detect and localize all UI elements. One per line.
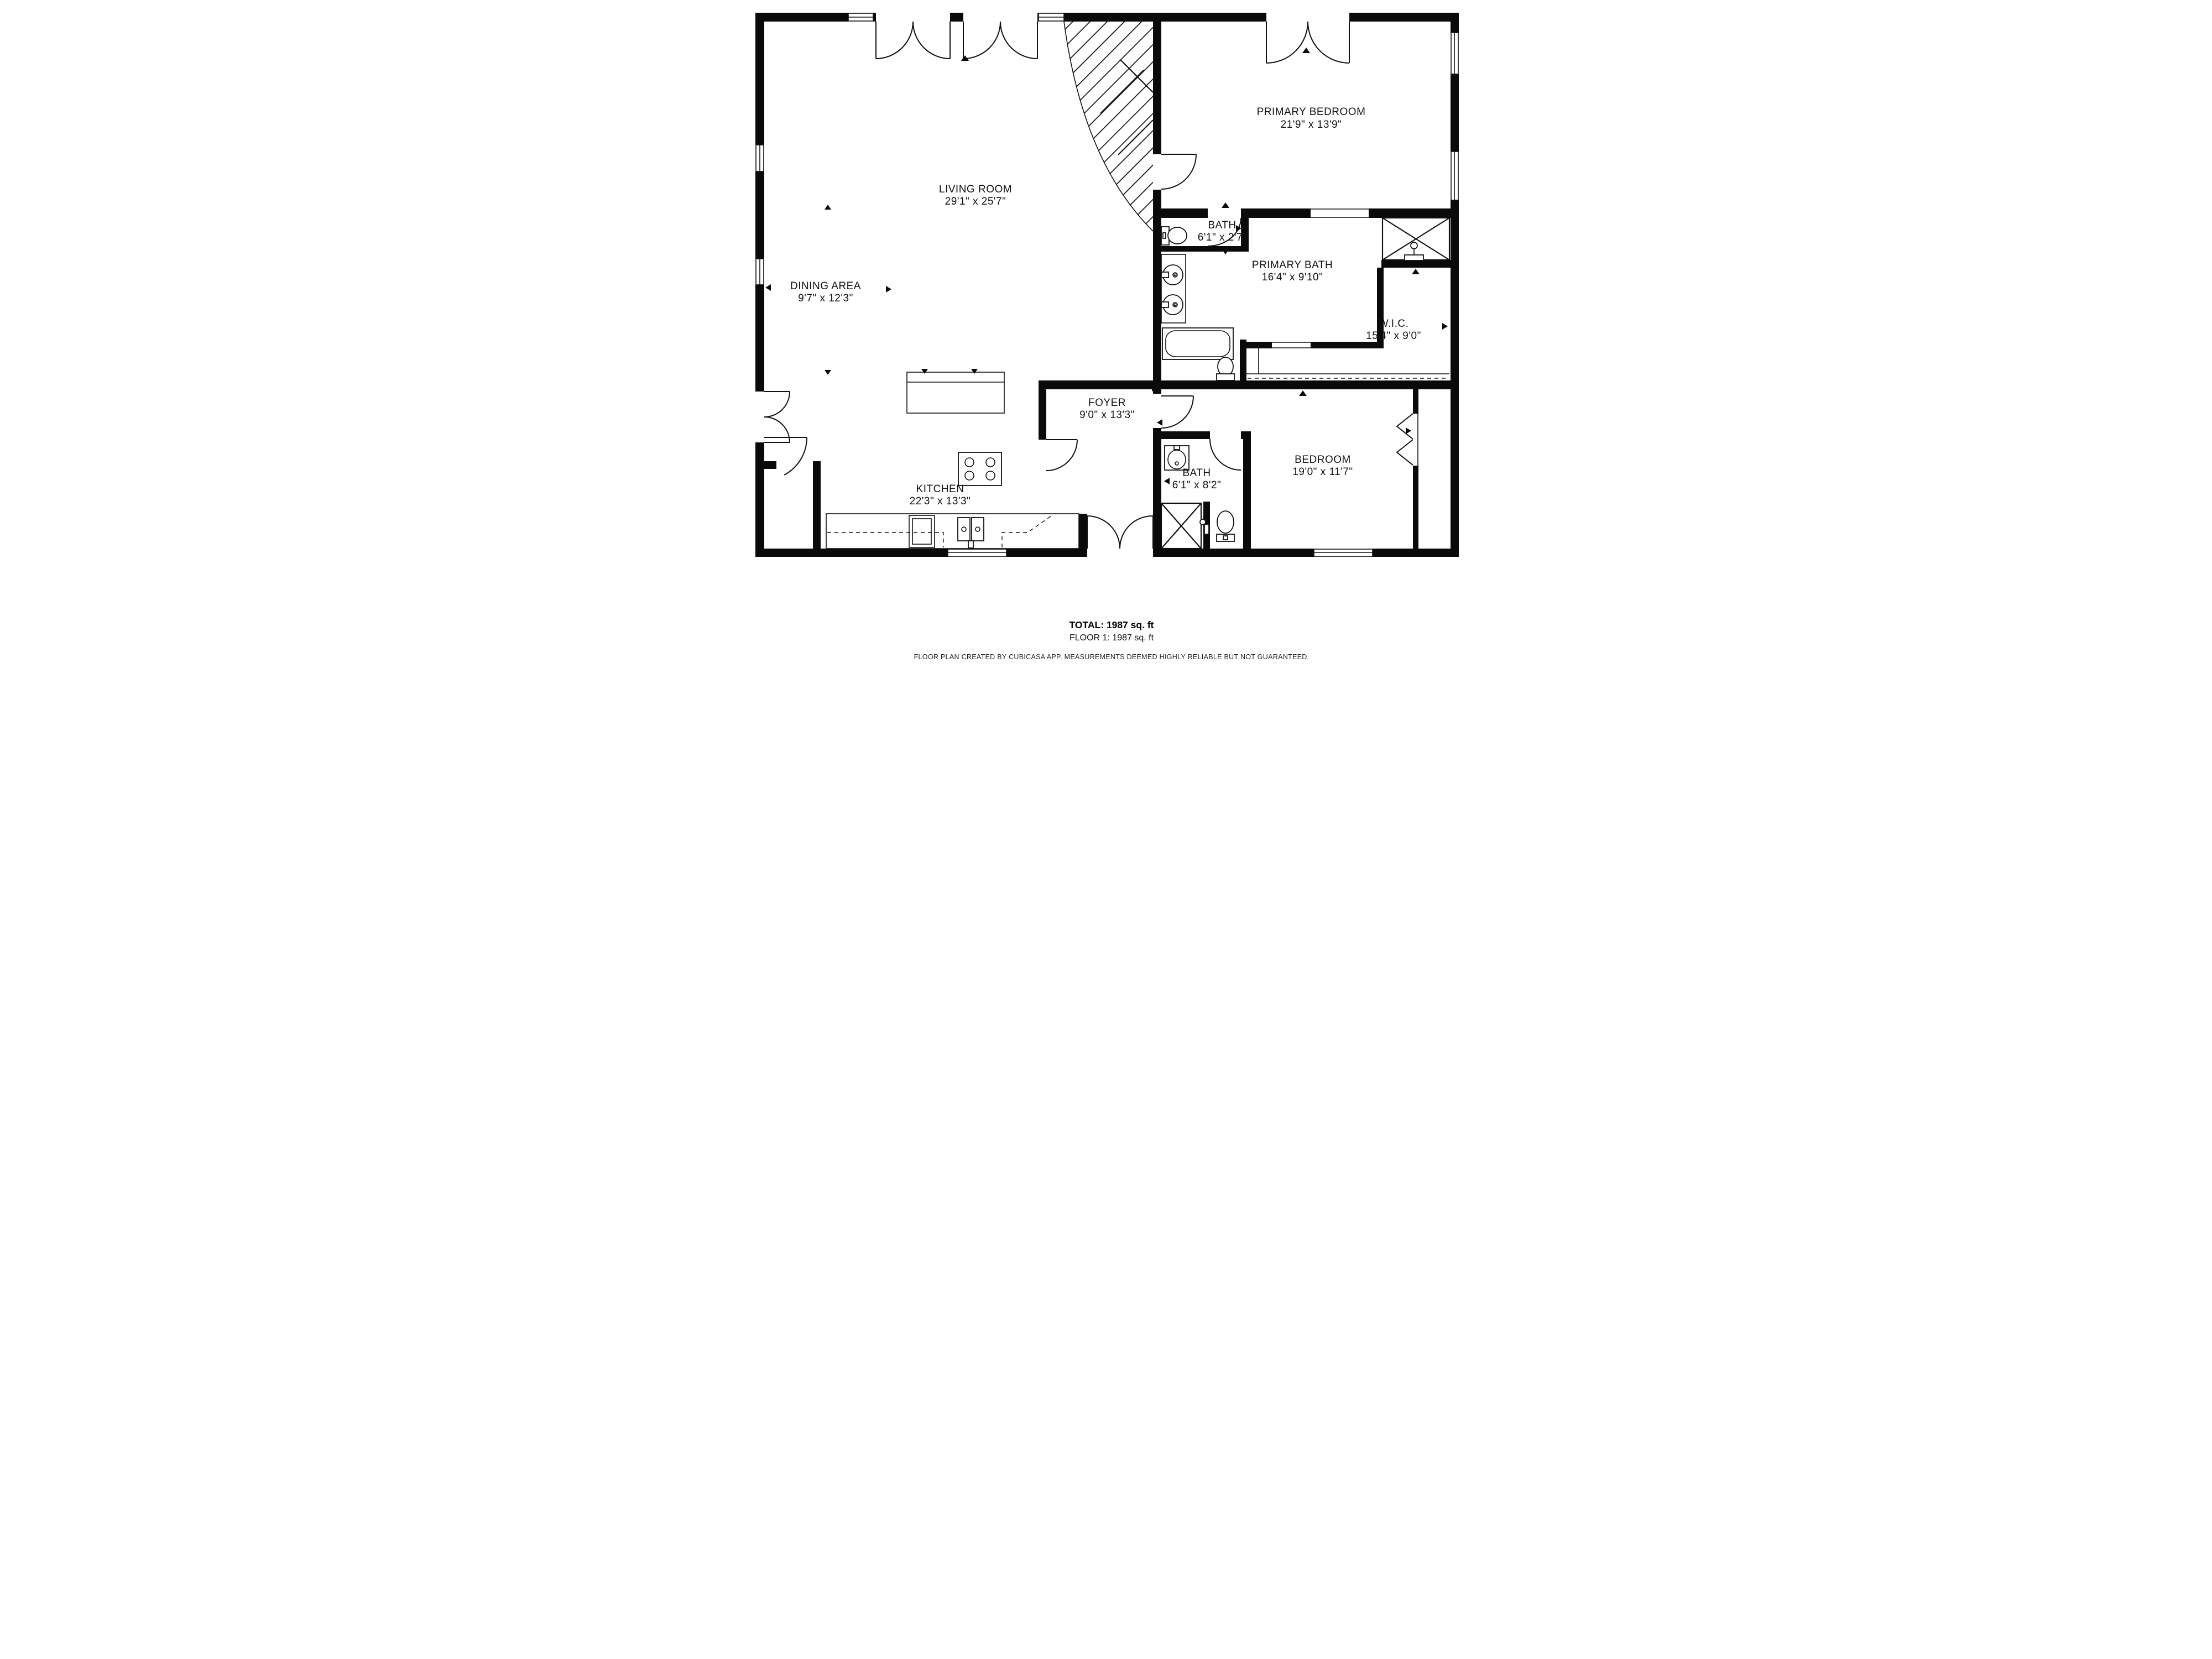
room-dims-kitchen: 22'3" x 13'3" xyxy=(910,495,971,507)
room-dims-dining: 9'7" x 12'3" xyxy=(798,293,853,304)
hatched-area xyxy=(1064,22,1153,231)
arrow-up-icon xyxy=(1299,390,1307,396)
wic-shelving xyxy=(1246,348,1449,378)
toilet-icon xyxy=(1161,227,1187,245)
arrow-up-icon xyxy=(825,205,831,210)
arrow-down-icon xyxy=(921,369,928,374)
dishwasher-icon xyxy=(909,515,935,547)
disclaimer-text: FLOOR PLAN CREATED BY CUBICASA APP. MEAS… xyxy=(914,653,1310,661)
room-dims-wc-bath: 6'1" x 2'7" xyxy=(1198,232,1247,243)
room-label-bath2: BATH xyxy=(1182,467,1211,479)
floor-plan-canvas: LIVING ROOM 29'1" x 25'7" PRIMARY BEDROO… xyxy=(664,0,1548,664)
room-dims-primary-bedroom: 21'9" x 13'9" xyxy=(1281,119,1342,131)
arrow-right-icon xyxy=(1406,427,1411,434)
summary: TOTAL: 1987 sq. ft FLOOR 1: 1987 sq. ft … xyxy=(914,619,1310,661)
arrow-up-icon xyxy=(1222,202,1229,208)
toilet-icon xyxy=(1217,511,1234,541)
arrow-right-icon xyxy=(1236,225,1241,232)
arrow-down-icon xyxy=(971,369,978,374)
door-icon xyxy=(1046,440,1077,471)
room-dims-bedroom: 19'0" x 11'7" xyxy=(1292,466,1353,478)
total-area-text: TOTAL: 1987 sq. ft xyxy=(1070,619,1154,630)
arrow-right-icon xyxy=(886,286,891,293)
toilet-icon xyxy=(1217,357,1234,380)
arrow-up-icon xyxy=(1302,48,1310,53)
arrow-left-icon xyxy=(765,284,771,291)
double-door-icon xyxy=(876,22,950,59)
room-label-wc-bath: BATH xyxy=(1208,220,1236,231)
room-label-primary-bath: PRIMARY BATH xyxy=(1252,259,1333,271)
room-label-kitchen: KITCHEN xyxy=(916,483,964,495)
room-dims-primary-bath: 16'4" x 9'10" xyxy=(1262,272,1323,283)
double-door-icon xyxy=(764,392,790,442)
room-label-foyer: FOYER xyxy=(1088,397,1126,409)
door-icon xyxy=(764,437,807,475)
shower-icon xyxy=(1161,503,1209,549)
room-label-dining: DINING AREA xyxy=(790,280,861,292)
stove-icon xyxy=(958,452,1001,486)
bathtub-icon xyxy=(1162,328,1233,359)
room-label-bedroom: BEDROOM xyxy=(1295,454,1351,466)
shower-icon xyxy=(1383,218,1449,260)
room-label-wic: W.I.C. xyxy=(1379,318,1409,330)
door-icon xyxy=(1161,396,1193,428)
arrow-down-icon xyxy=(825,370,831,375)
kitchen-island xyxy=(907,372,1004,413)
arrow-up-icon xyxy=(1412,269,1420,274)
floor-plan-page: LIVING ROOM 29'1" x 25'7" PRIMARY BEDROO… xyxy=(664,0,1548,664)
bathroom-sink-icon xyxy=(1165,446,1189,470)
arrow-left-icon xyxy=(1164,478,1170,484)
arrow-right-icon xyxy=(1442,323,1448,330)
kitchen-counter xyxy=(826,514,1079,549)
floor-area-text: FLOOR 1: 1987 sq. ft xyxy=(1070,633,1154,643)
door-icon xyxy=(1161,154,1196,189)
double-door-icon xyxy=(963,22,1037,59)
bifold-closet-doors-icon xyxy=(1397,414,1418,466)
room-dims-wic: 15'4" x 9'0" xyxy=(1366,330,1421,342)
double-vanity-icon xyxy=(1161,254,1186,323)
double-door-icon xyxy=(1266,22,1349,63)
room-dims-living: 29'1" x 25'7" xyxy=(945,196,1006,207)
room-dims-bath2: 6'1" x 8'2" xyxy=(1172,479,1222,491)
room-dims-foyer: 9'0" x 13'3" xyxy=(1079,409,1135,421)
room-label-primary-bedroom: PRIMARY BEDROOM xyxy=(1257,106,1366,118)
double-door-icon xyxy=(1087,516,1153,549)
door-icon xyxy=(1210,439,1241,470)
room-label-living: LIVING ROOM xyxy=(939,184,1012,195)
kitchen-sink-icon xyxy=(958,518,984,548)
